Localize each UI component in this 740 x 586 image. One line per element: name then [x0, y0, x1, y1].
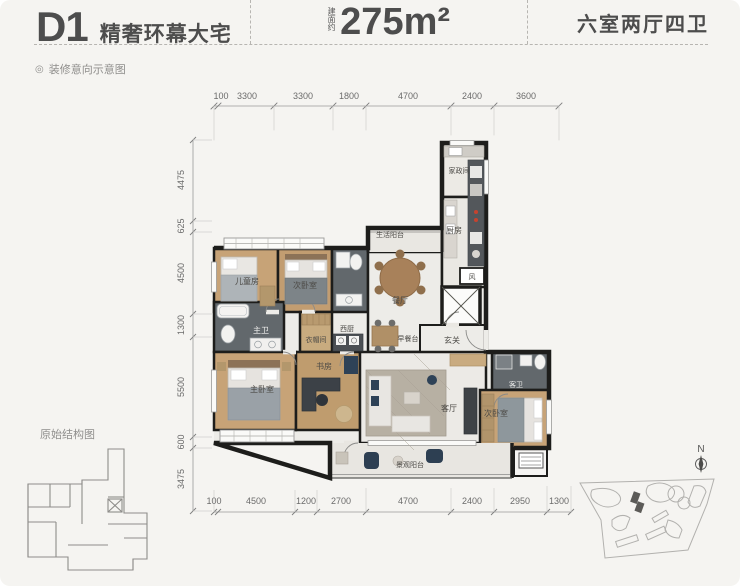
label-master-bedroom: 主卧室: [250, 384, 274, 394]
floorplan-page: D1 精奢环幕大宅 建面约 275m² 六室两厅四卫 ◎ 装修意向示意图: [0, 0, 740, 586]
label-kids: 儿童房: [235, 276, 259, 286]
dim-bot-2: 1200: [296, 496, 316, 506]
foyer-cabinet: [450, 354, 486, 366]
bedroom3-bed: [482, 394, 542, 442]
ac-platform: [514, 448, 547, 476]
label-view-balcony: 景观阳台: [396, 460, 424, 469]
dim-top-6: 3600: [516, 91, 536, 101]
dim-bot-5: 2400: [462, 496, 482, 506]
dim-bot-7: 1300: [549, 496, 569, 506]
north-compass: N: [696, 444, 707, 473]
label-study: 书房: [316, 361, 332, 371]
dim-top-5: 2400: [462, 91, 482, 101]
label-master-bath: 主卫: [253, 325, 269, 335]
dimensions-bottom: 100 4500 1200 2700 4700 2400 2950 1300: [206, 486, 574, 515]
label-breakfast-bar: 早餐台: [398, 334, 419, 343]
label-bedroom3: 次卧室: [484, 408, 508, 418]
label-foyer: 玄关: [444, 335, 460, 345]
west-kitchen-cabinets: [333, 334, 363, 351]
dim-left-4: 5500: [176, 377, 186, 397]
dim-top-4: 4700: [398, 91, 418, 101]
dim-left-1: 625: [176, 218, 186, 233]
label-dining: 餐厅: [392, 296, 408, 305]
label-kitchen: 厨房: [446, 225, 462, 235]
dim-left-0: 4475: [176, 170, 186, 190]
dim-top-1: 3300: [237, 91, 257, 101]
north-needle-icon: [699, 455, 704, 473]
label-service-balcony: 生活阳台: [376, 230, 404, 239]
dim-top-3: 1800: [339, 91, 359, 101]
dim-bot-4: 4700: [398, 496, 418, 506]
label-west-kitchen: 西厨: [340, 325, 354, 333]
dim-bot-3: 2700: [331, 496, 351, 506]
bedroom2-bed: [285, 254, 327, 304]
view-balcony: [330, 443, 512, 478]
dimensions-left: 4475 625 4500 1300 5500 600 3475: [176, 137, 212, 514]
dim-left-3: 1300: [176, 315, 186, 335]
site-plan: [580, 479, 714, 558]
dim-left-2: 4500: [176, 263, 186, 283]
label-closet: 衣帽间: [306, 335, 327, 344]
dim-left-5: 600: [176, 434, 186, 449]
floorplan-canvas: 100 3300 3300 1800 4700 2400 3600: [0, 0, 740, 586]
dim-left-6: 3475: [176, 469, 186, 489]
closet-wardrobe: [302, 314, 330, 325]
north-label: N: [697, 444, 704, 455]
label-vent: 风: [469, 273, 476, 281]
label-living: 客厅: [441, 403, 457, 413]
dimensions-top: 100 3300 3300 1800 4700 2400 3600: [211, 91, 562, 140]
structure-mini-plan: 原始结构图: [28, 427, 147, 570]
label-guest-bath: 客卫: [509, 380, 523, 389]
dim-top-2: 3300: [293, 91, 313, 101]
label-bedroom2: 次卧室: [293, 280, 317, 290]
dim-bot-6: 2950: [510, 496, 530, 506]
dim-bot-1: 4500: [246, 496, 266, 506]
structure-label: 原始结构图: [40, 427, 95, 441]
label-housekeeping: 家政间: [449, 166, 470, 175]
dim-top-0: 100: [213, 91, 228, 101]
dim-bot-0: 100: [206, 496, 221, 506]
